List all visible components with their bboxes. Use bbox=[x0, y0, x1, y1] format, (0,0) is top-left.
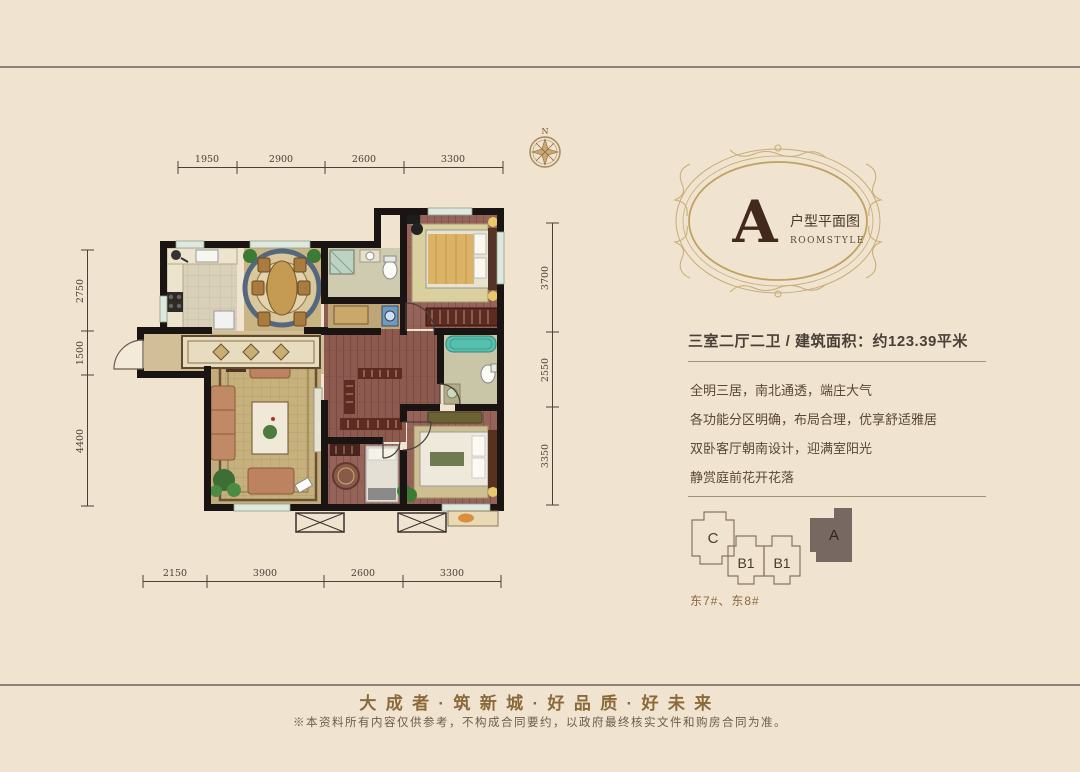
poster-canvas: 1950 2900 2600 3300 2750 1500 4400 3700 … bbox=[0, 0, 1080, 772]
dim-label: 2150 bbox=[163, 568, 187, 579]
building-key-plan: C B1 B1 A bbox=[678, 498, 898, 590]
dining-table-icon bbox=[267, 261, 297, 315]
sink-icon bbox=[196, 250, 218, 262]
pillow-icon bbox=[368, 448, 396, 460]
basin-icon bbox=[366, 252, 374, 260]
bathtub-icon bbox=[446, 336, 496, 352]
roomstyle-badge: A 户型平面图 ROOMSTYLE bbox=[660, 136, 900, 306]
armchair-icon bbox=[248, 468, 294, 494]
toilet-icon bbox=[383, 261, 397, 279]
wardrobe-icon bbox=[426, 308, 498, 326]
chair-icon bbox=[258, 312, 270, 326]
dim-label: 2600 bbox=[352, 154, 376, 165]
keyplan-caption: 东7#、东8# bbox=[690, 592, 760, 609]
foyer-area bbox=[182, 336, 320, 368]
dim-label: 2900 bbox=[269, 154, 293, 165]
compass-north-label: N bbox=[542, 127, 549, 136]
bench-icon bbox=[428, 412, 482, 423]
badge-subtitle: ROOMSTYLE bbox=[790, 236, 865, 246]
chair-icon bbox=[252, 281, 264, 295]
pillow-icon bbox=[474, 234, 486, 254]
dim-label: 3900 bbox=[253, 568, 277, 579]
sofa-icon bbox=[211, 386, 235, 460]
block-label: B1 bbox=[773, 555, 790, 571]
feature-item: 双卧客厅朝南设计，迎满室阳光 bbox=[690, 434, 990, 463]
floor-plan: 1950 2900 2600 3300 2750 1500 4400 3700 … bbox=[75, 110, 575, 605]
dim-label: 2750 bbox=[75, 279, 86, 303]
basin-icon bbox=[447, 388, 457, 398]
pillow-icon bbox=[474, 258, 486, 278]
storage-area bbox=[334, 306, 398, 326]
chair-icon bbox=[294, 312, 306, 326]
brand-slogan: 大成者·筑新城·好品质·好未来 bbox=[0, 689, 1080, 714]
entry-door-icon bbox=[114, 340, 143, 369]
plant-icon bbox=[307, 249, 321, 263]
top-rule bbox=[0, 66, 1080, 68]
fridge-icon bbox=[214, 311, 234, 329]
dim-label: 3350 bbox=[540, 444, 551, 468]
feature-item: 全明三居，南北通透，端庄大气 bbox=[690, 376, 990, 405]
lamp-icon bbox=[488, 217, 498, 227]
lamp-icon bbox=[488, 291, 498, 301]
feature-list: 全明三居，南北通透，端庄大气 各功能分区明确，布局合理，优享舒适雅居 双卧客厅朝… bbox=[690, 376, 990, 492]
plant-icon bbox=[243, 249, 257, 263]
block-label-active: A bbox=[829, 527, 839, 544]
stove-icon bbox=[167, 292, 183, 312]
legal-disclaimer: ※本资料所有内容仅供参考，不构成合同要约，以政府最终核实文件和购房合同为准。 bbox=[0, 714, 1080, 730]
round-rug-icon bbox=[333, 463, 359, 489]
feature-item: 静赏庭前花开花落 bbox=[690, 463, 990, 492]
dim-label: 2550 bbox=[540, 358, 551, 382]
unit-letter: A bbox=[731, 188, 778, 256]
dim-label: 2600 bbox=[351, 568, 375, 579]
dim-label: 3300 bbox=[441, 154, 465, 165]
lamp-icon bbox=[488, 487, 498, 497]
dim-label: 1500 bbox=[75, 341, 86, 365]
badge-title: 户型平面图 bbox=[790, 213, 860, 229]
divider bbox=[688, 496, 986, 497]
dim-label: 3300 bbox=[440, 568, 464, 579]
divider bbox=[688, 361, 986, 362]
chair-icon bbox=[298, 281, 310, 295]
dim-label: 1950 bbox=[195, 154, 219, 165]
chair-icon bbox=[294, 258, 306, 272]
master-bedroom-area bbox=[403, 412, 498, 502]
bookshelf-icon bbox=[340, 418, 402, 430]
bottom-rule bbox=[0, 684, 1080, 686]
bookshelf-icon bbox=[344, 380, 355, 414]
pillow-icon bbox=[472, 458, 485, 478]
block-label: C bbox=[708, 530, 719, 547]
dim-label: 3700 bbox=[540, 266, 551, 290]
dining-room-area bbox=[243, 249, 321, 326]
window-boxes bbox=[296, 511, 498, 532]
cabinet-icon bbox=[330, 444, 360, 456]
block-label: B1 bbox=[737, 555, 754, 571]
compass-icon: N bbox=[530, 127, 560, 167]
feature-item: 各功能分区明确，布局合理，优享舒适雅居 bbox=[690, 405, 990, 434]
chair-icon bbox=[258, 258, 270, 272]
pillow-icon bbox=[472, 436, 485, 456]
dim-label: 4400 bbox=[75, 429, 86, 453]
unit-headline: 三室二厅二卫 / 建筑面积：约123.39平米 bbox=[688, 330, 998, 351]
tv-cabinet-icon bbox=[314, 388, 322, 452]
